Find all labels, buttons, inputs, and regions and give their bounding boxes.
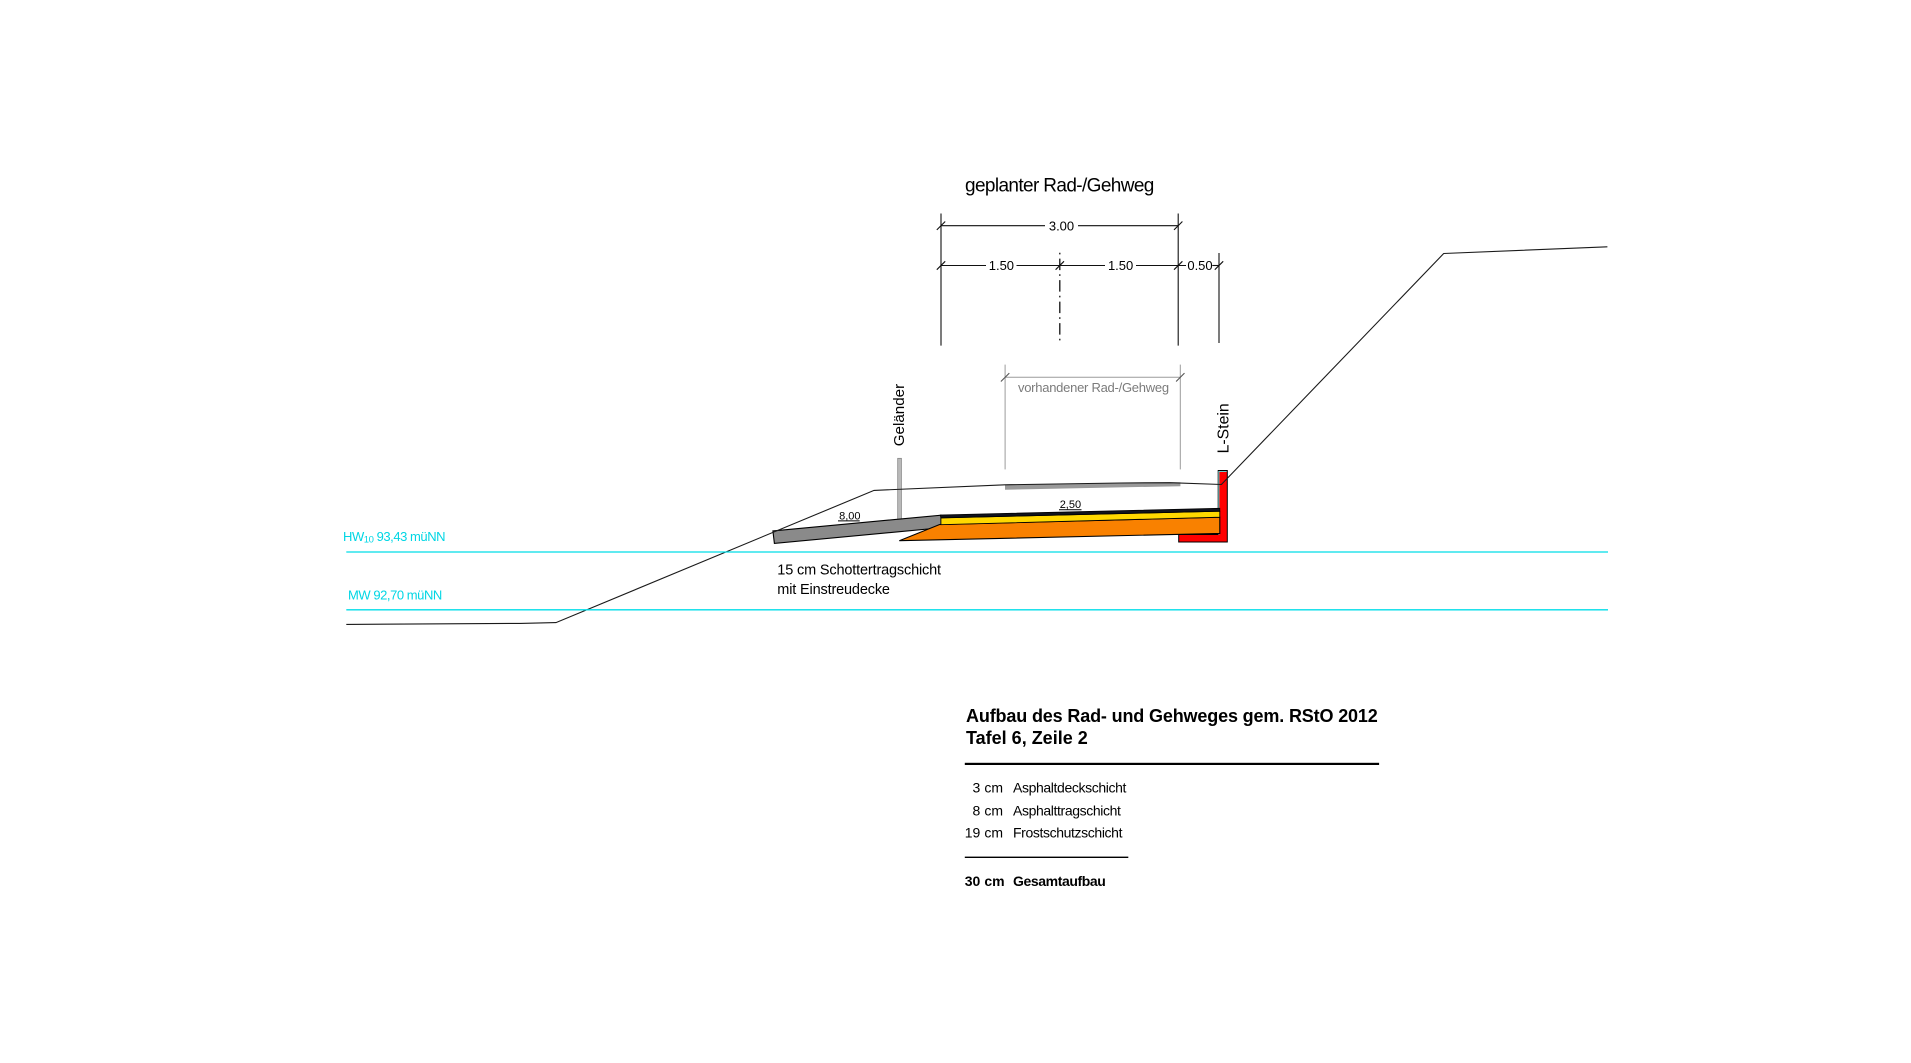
svg-text:L-Stein: L-Stein <box>1215 403 1232 453</box>
svg-text:cm: cm <box>984 780 1003 796</box>
svg-text:15 cm Schottertragschicht: 15 cm Schottertragschicht <box>777 562 941 578</box>
svg-text:Asphalttragschicht: Asphalttragschicht <box>1013 802 1121 818</box>
svg-text:geplanter Rad-/Gehweg: geplanter Rad-/Gehweg <box>965 176 1154 197</box>
svg-text:1.50: 1.50 <box>989 258 1014 273</box>
svg-text:1.50: 1.50 <box>1108 258 1133 273</box>
svg-text:cm: cm <box>984 802 1003 818</box>
svg-text:Asphaltdeckschicht: Asphaltdeckschicht <box>1013 780 1126 796</box>
svg-text:cm: cm <box>984 873 1004 889</box>
svg-text:Tafel 6, Zeile 2: Tafel 6, Zeile 2 <box>966 728 1088 748</box>
svg-text:3.00: 3.00 <box>1049 218 1074 233</box>
svg-text:Aufbau des Rad- und Gehweges g: Aufbau des Rad- und Gehweges gem. RStO 2… <box>966 706 1378 726</box>
svg-text:0.50: 0.50 <box>1187 258 1212 273</box>
svg-text:MW 92,70 müNN: MW 92,70 müNN <box>348 588 442 603</box>
svg-text:HW10 93,43 müNN: HW10 93,43 müNN <box>343 529 445 546</box>
svg-text:Gesamtaufbau: Gesamtaufbau <box>1013 873 1105 889</box>
svg-text:3: 3 <box>973 780 981 796</box>
svg-text:cm: cm <box>984 825 1003 841</box>
svg-text:Geländer: Geländer <box>891 384 908 446</box>
svg-text:8: 8 <box>973 802 981 818</box>
svg-text:30: 30 <box>965 873 981 889</box>
svg-text:vorhandener Rad-/Gehweg: vorhandener Rad-/Gehweg <box>1018 380 1169 395</box>
svg-text:mit Einstreudecke: mit Einstreudecke <box>777 582 890 598</box>
svg-text:Frostschutzschicht: Frostschutzschicht <box>1013 825 1123 841</box>
svg-text:19: 19 <box>965 825 981 841</box>
